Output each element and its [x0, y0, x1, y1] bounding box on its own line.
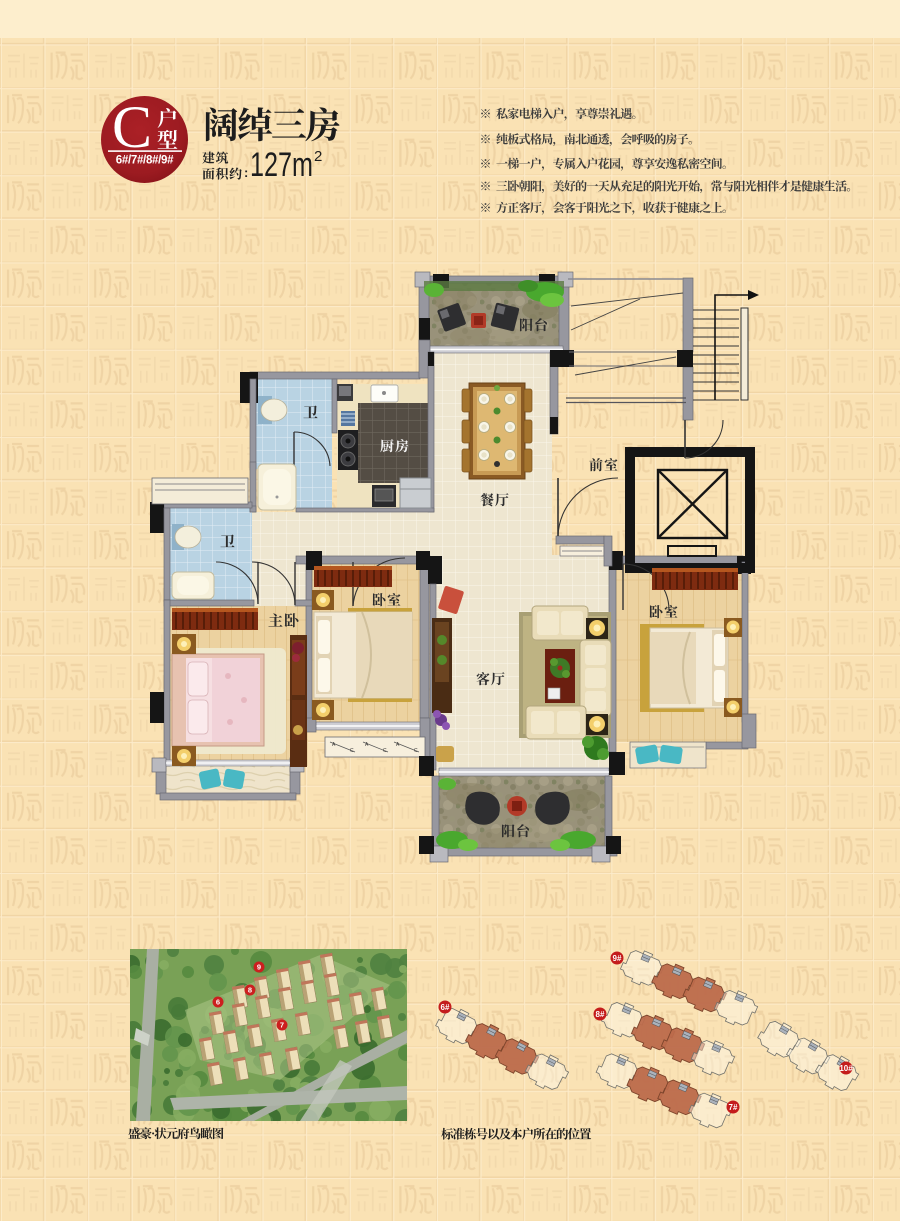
svg-text:7: 7 — [280, 1021, 284, 1030]
svg-text:C: C — [414, 748, 418, 754]
svg-text:8#: 8# — [596, 1010, 605, 1019]
svg-text:2: 2 — [314, 148, 322, 165]
svg-text:8: 8 — [248, 986, 252, 995]
svg-text::: : — [244, 165, 248, 180]
svg-text:6#/7#/8#/9#: 6#/7#/8#/9# — [116, 155, 174, 167]
svg-text:C: C — [383, 748, 387, 754]
svg-text:C: C — [112, 94, 152, 160]
svg-text:127m: 127m — [250, 146, 313, 184]
svg-text:7#: 7# — [729, 1103, 738, 1112]
svg-text:6#: 6# — [441, 1003, 450, 1012]
svg-text:9: 9 — [257, 963, 261, 972]
svg-text:6: 6 — [216, 998, 220, 1007]
svg-text:9#: 9# — [613, 954, 622, 963]
svg-text:C: C — [350, 748, 354, 754]
svg-text:10#: 10# — [839, 1064, 853, 1073]
